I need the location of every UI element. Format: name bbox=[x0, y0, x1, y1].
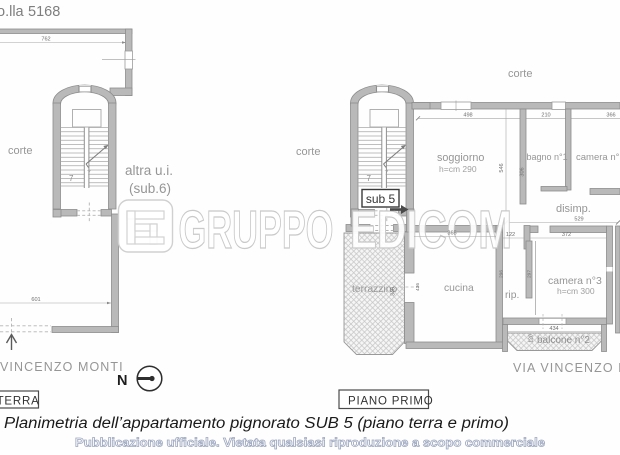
svg-text:601: 601 bbox=[31, 297, 40, 303]
svg-text:VIA VINCENZO MO: VIA VINCENZO MO bbox=[513, 361, 620, 375]
svg-text:corte: corte bbox=[296, 146, 320, 158]
svg-text:h=cm 290: h=cm 290 bbox=[439, 164, 477, 174]
svg-text:762: 762 bbox=[41, 37, 50, 43]
svg-text:rip.: rip. bbox=[505, 290, 519, 301]
svg-text:306: 306 bbox=[520, 167, 526, 176]
svg-text:sub 5: sub 5 bbox=[366, 192, 396, 206]
svg-text:498: 498 bbox=[463, 113, 472, 119]
svg-text:corte: corte bbox=[508, 68, 532, 80]
svg-text:120: 120 bbox=[529, 334, 535, 343]
svg-text:GRUPPO: GRUPPO bbox=[179, 200, 334, 260]
svg-text:cucina: cucina bbox=[444, 283, 474, 294]
svg-text:5168: 5168 bbox=[28, 4, 60, 20]
svg-text:N: N bbox=[117, 373, 127, 389]
svg-text:o.lla: o.lla bbox=[0, 4, 25, 20]
svg-text:(sub.6): (sub.6) bbox=[129, 181, 171, 196]
svg-text:corte: corte bbox=[8, 145, 32, 157]
svg-text:340: 340 bbox=[391, 287, 397, 296]
svg-text:436: 436 bbox=[415, 283, 421, 291]
svg-text:camera n°: camera n° bbox=[576, 152, 620, 163]
svg-text:soggiorno: soggiorno bbox=[437, 152, 484, 164]
svg-text:disimp.: disimp. bbox=[556, 203, 591, 215]
svg-text:372: 372 bbox=[562, 232, 571, 238]
svg-text:546: 546 bbox=[499, 163, 505, 172]
svg-text:VINCENZO MONTI: VINCENZO MONTI bbox=[0, 360, 124, 374]
svg-text:bagno n°1: bagno n°1 bbox=[527, 152, 568, 162]
svg-text:PIANO PRIMO: PIANO PRIMO bbox=[348, 396, 433, 408]
svg-text:297: 297 bbox=[527, 270, 533, 278]
svg-text:h=cm 300: h=cm 300 bbox=[557, 286, 595, 296]
svg-text:365: 365 bbox=[447, 231, 456, 237]
svg-text:210: 210 bbox=[541, 113, 550, 119]
svg-text:Pubblicazione ufficiale. Vieta: Pubblicazione ufficiale. Vietata qualsia… bbox=[75, 436, 545, 450]
svg-text:EDICOM: EDICOM bbox=[350, 200, 512, 260]
svg-text:balcone n°2: balcone n°2 bbox=[537, 335, 590, 346]
svg-text:434: 434 bbox=[549, 326, 558, 332]
svg-text:PIANO TERRA: PIANO TERRA bbox=[0, 396, 40, 408]
svg-text:529: 529 bbox=[574, 217, 583, 223]
svg-text:296: 296 bbox=[499, 270, 505, 278]
svg-text:366: 366 bbox=[606, 113, 615, 119]
svg-text:altra u.i.: altra u.i. bbox=[125, 163, 173, 178]
svg-text:Planimetria dell’appartamento: Planimetria dell’appartamento pignorato … bbox=[4, 415, 509, 432]
svg-text:122: 122 bbox=[506, 232, 515, 238]
